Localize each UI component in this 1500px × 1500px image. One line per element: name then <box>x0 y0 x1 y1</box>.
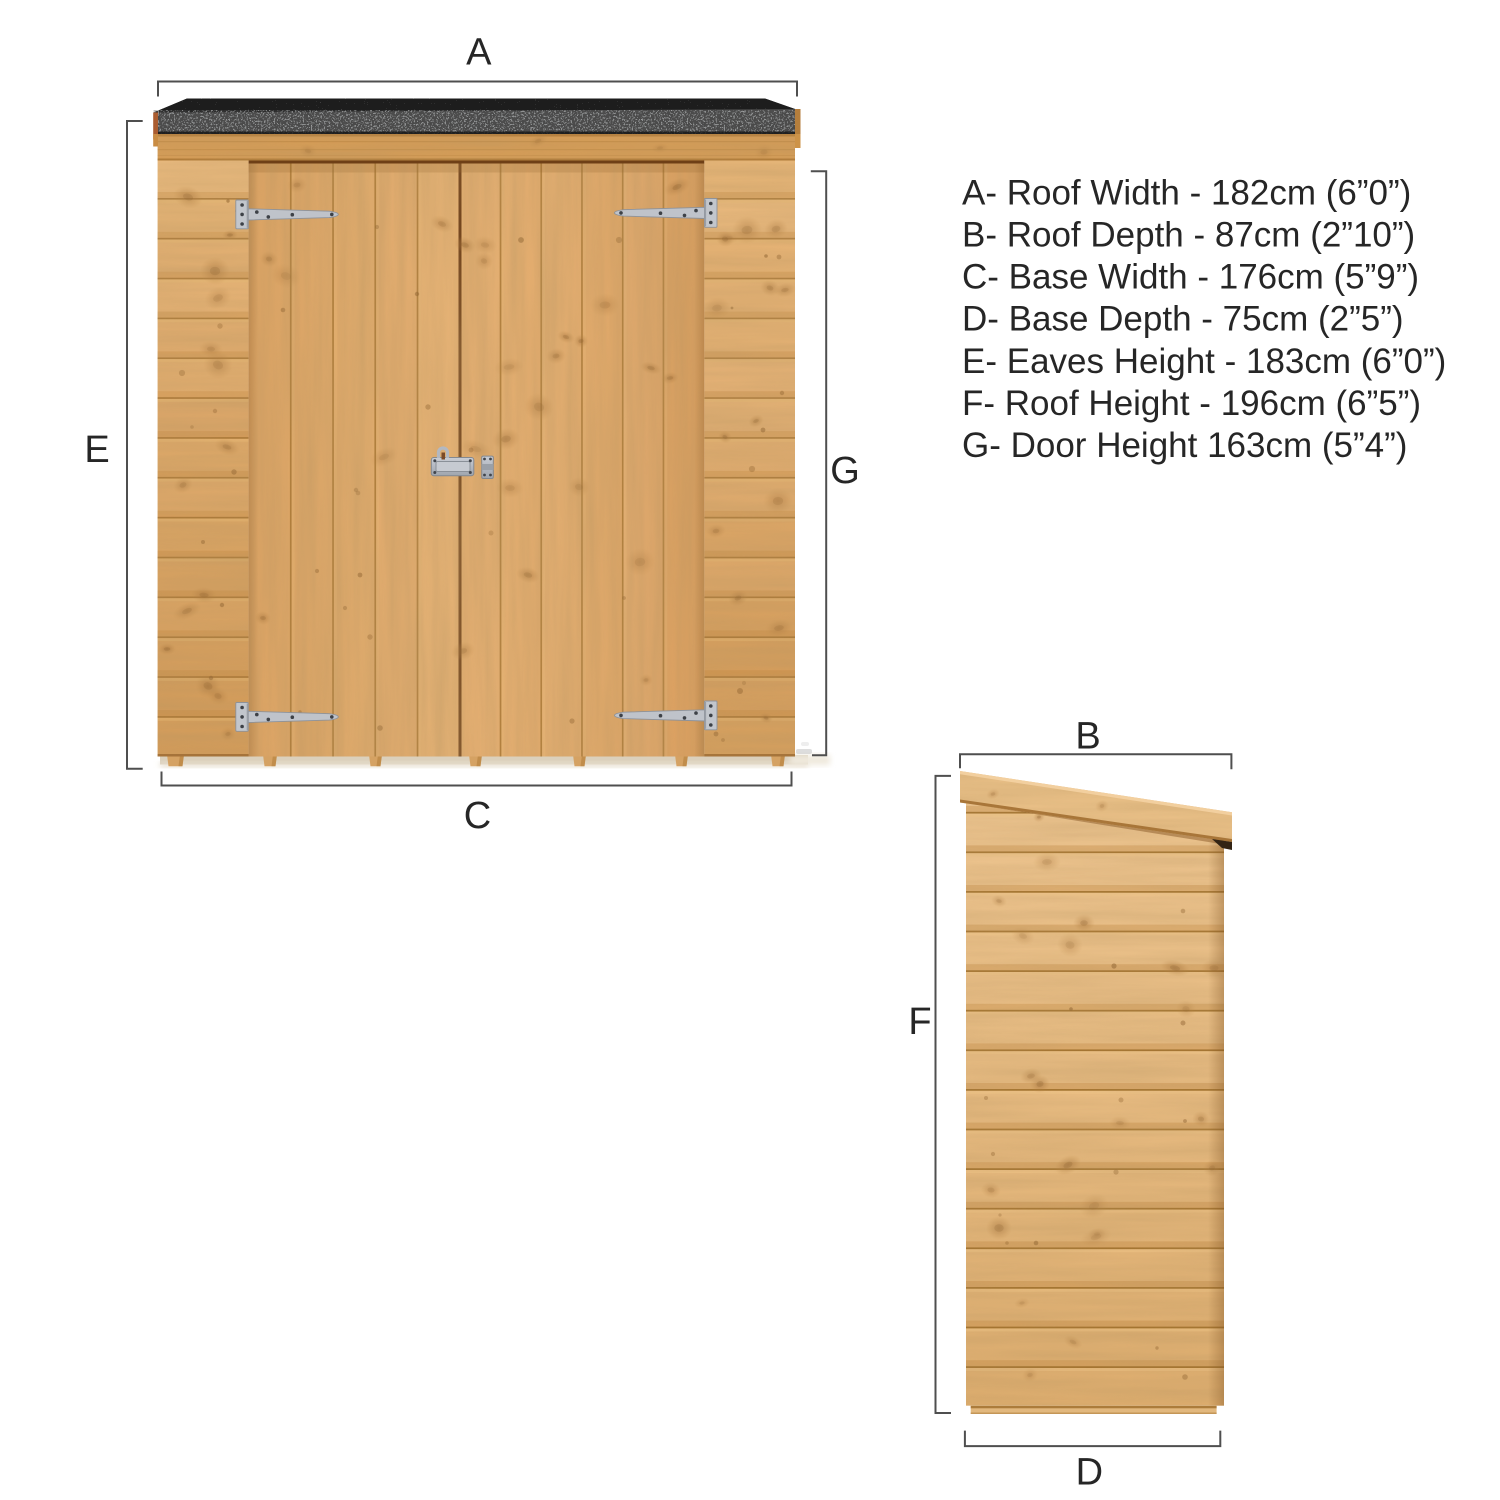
svg-text:B: B <box>1075 716 1100 758</box>
svg-text:C- Base Width - 176cm (5”9”): C- Base Width - 176cm (5”9”) <box>962 258 1419 297</box>
svg-text:A- Roof Width - 182cm (6”0”): A- Roof Width - 182cm (6”0”) <box>962 173 1411 212</box>
svg-text:G: G <box>830 450 860 492</box>
svg-text:D- Base Depth - 75cm (2”5”): D- Base Depth - 75cm (2”5”) <box>962 300 1404 339</box>
svg-text:E- Eaves Height - 183cm (6”0”): E- Eaves Height - 183cm (6”0”) <box>962 342 1446 381</box>
svg-text:C: C <box>464 795 491 837</box>
svg-text:D: D <box>1076 1452 1103 1494</box>
svg-text:A: A <box>466 32 492 74</box>
svg-text:F: F <box>908 1001 931 1043</box>
svg-text:G- Door Height 163cm (5”4”): G- Door Height 163cm (5”4”) <box>962 426 1407 465</box>
svg-text:E: E <box>84 429 109 471</box>
svg-text:B- Roof Depth - 87cm (2”10”): B- Roof Depth - 87cm (2”10”) <box>962 216 1415 255</box>
svg-text:F- Roof Height - 196cm (6”5”): F- Roof Height - 196cm (6”5”) <box>962 384 1421 423</box>
